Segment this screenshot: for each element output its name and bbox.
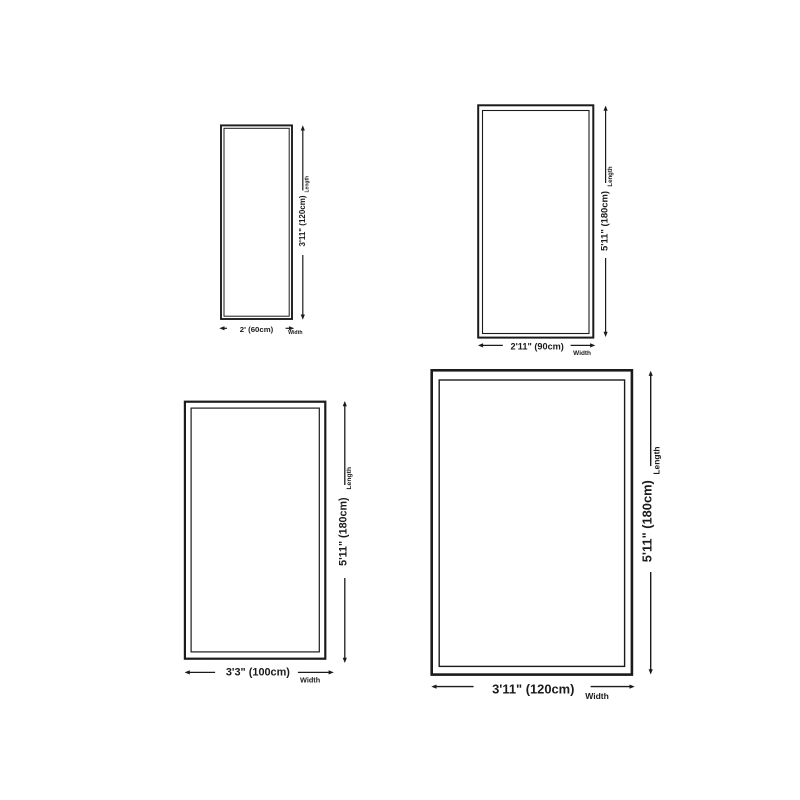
svg-text:Length: Length	[304, 176, 310, 193]
svg-text:3'11" (120cm): 3'11" (120cm)	[492, 681, 574, 696]
svg-text:Length: Length	[607, 166, 614, 186]
svg-text:3'3" (100cm): 3'3" (100cm)	[226, 667, 290, 679]
svg-text:Width: Width	[585, 691, 609, 701]
svg-text:Length: Length	[652, 446, 662, 474]
svg-text:2' (60cm): 2' (60cm)	[240, 325, 274, 334]
svg-text:Width: Width	[300, 678, 320, 685]
svg-text:5'11" (180cm): 5'11" (180cm)	[338, 497, 350, 566]
svg-text:5'11" (180cm): 5'11" (180cm)	[639, 480, 654, 562]
svg-text:Length: Length	[346, 467, 353, 490]
svg-text:3'11" (120cm): 3'11" (120cm)	[298, 195, 307, 246]
svg-text:Width: Width	[288, 330, 302, 336]
svg-text:2'11" (90cm): 2'11" (90cm)	[511, 341, 564, 351]
svg-text:Width: Width	[573, 350, 591, 357]
svg-text:5'11" (180cm): 5'11" (180cm)	[598, 191, 609, 251]
